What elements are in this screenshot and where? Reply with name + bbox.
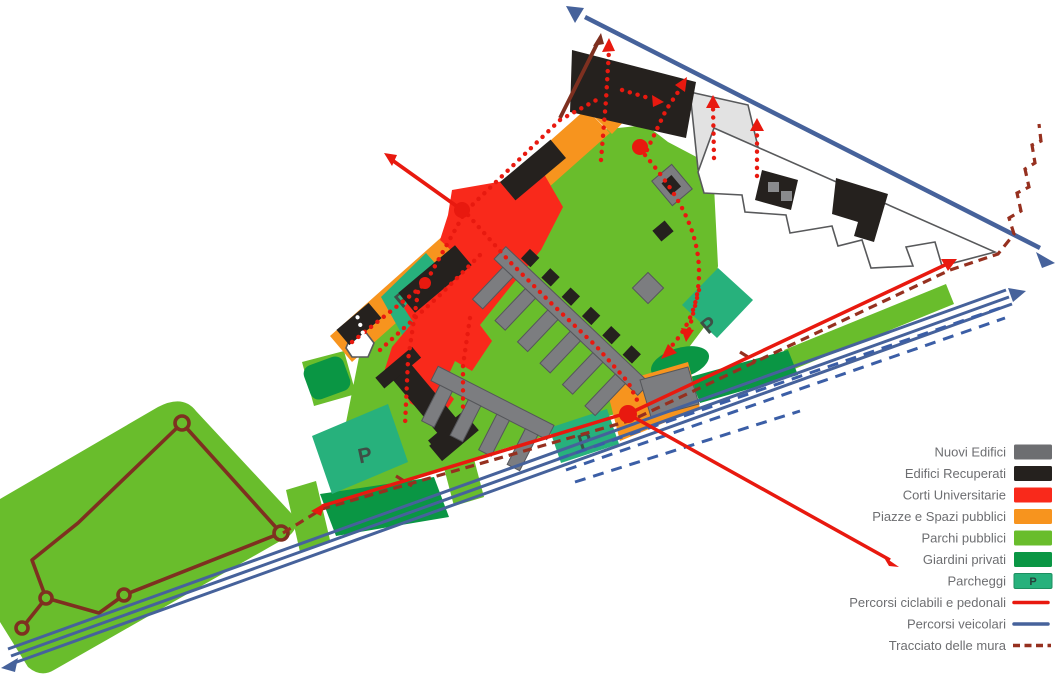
plaza-axis-arrow (392, 160, 462, 210)
legend-label: Percorsi ciclabili e pedonali (849, 595, 1006, 610)
path-node (619, 405, 637, 423)
legend-row-parchi: Parchi pubblici (921, 531, 1052, 546)
path-arrowhead (602, 38, 615, 52)
route-to-legend (628, 414, 890, 560)
legend-parking-p: P (1029, 576, 1036, 588)
legend-label: Edifici Recuperati (905, 466, 1006, 481)
legend: Nuovi Edifici Edifici Recuperati Corti U… (849, 445, 1052, 654)
legend-swatch-black (1014, 466, 1052, 481)
route-arrowhead (883, 556, 899, 567)
bastion-node (175, 416, 189, 430)
bastion-node (40, 592, 52, 604)
road-arrowhead (566, 6, 584, 23)
west-park (0, 401, 296, 673)
path-node (419, 277, 431, 289)
road-arrowhead (1036, 252, 1055, 268)
road-arrowhead (1, 658, 18, 672)
legend-swatch-gray (1014, 445, 1052, 460)
bastion-node (118, 589, 130, 601)
legend-row-corti: Corti Universitarie (903, 488, 1052, 503)
legend-swatch-red (1014, 488, 1052, 503)
masterplan-diagram: P P P P (0, 0, 1063, 685)
legend-row-ciclabili: Percorsi ciclabili e pedonali (849, 595, 1048, 610)
legend-swatch-lightgreen (1014, 531, 1052, 546)
legend-label: Parchi pubblici (921, 531, 1006, 546)
legend-row-nuovi: Nuovi Edifici (934, 445, 1052, 460)
legend-row-recuperati: Edifici Recuperati (905, 466, 1052, 481)
roof-detail (781, 191, 792, 201)
roof-detail (768, 182, 779, 192)
legend-label: Tracciato delle mura (889, 638, 1007, 653)
legend-label: Parcheggi (947, 574, 1006, 589)
site-plan-svg: P P P P (0, 0, 1063, 685)
path-node (632, 139, 648, 155)
bastion-node (16, 622, 28, 634)
legend-row-piazze: Piazze e Spazi pubblici (872, 509, 1052, 524)
legend-label: Percorsi veicolari (907, 617, 1006, 632)
legend-label: Piazze e Spazi pubblici (872, 509, 1006, 524)
path-node (454, 202, 470, 218)
legend-row-mura: Tracciato delle mura (889, 638, 1051, 653)
road-arrowhead (1008, 288, 1026, 302)
legend-label: Nuovi Edifici (934, 445, 1006, 460)
legend-row-parcheggi: Parcheggi P (947, 574, 1052, 589)
legend-row-veicolari: Percorsi veicolari (907, 617, 1048, 632)
route-arrowhead (593, 33, 604, 46)
legend-swatch-darkgreen (1014, 552, 1052, 567)
legend-swatch-orange (1014, 509, 1052, 524)
legend-label: Giardini privati (923, 552, 1006, 567)
legend-label: Corti Universitarie (903, 488, 1006, 503)
legend-row-giardini: Giardini privati (923, 552, 1052, 567)
